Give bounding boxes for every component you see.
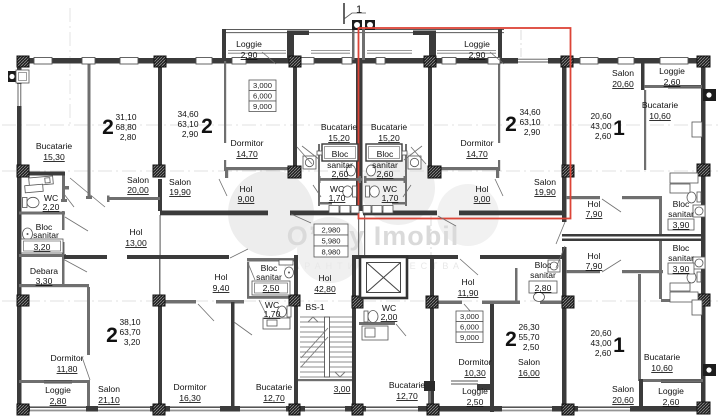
svg-text:10,60: 10,60 bbox=[649, 111, 671, 121]
svg-text:13,00: 13,00 bbox=[125, 238, 147, 248]
svg-text:10,30: 10,30 bbox=[464, 368, 486, 378]
svg-text:sanitar: sanitar bbox=[668, 253, 694, 263]
svg-text:Bloc: Bloc bbox=[332, 149, 349, 159]
svg-text:Loggie: Loggie bbox=[45, 385, 71, 395]
svg-text:8,980: 8,980 bbox=[321, 248, 340, 257]
svg-text:Loggie: Loggie bbox=[659, 66, 685, 76]
svg-text:2,90: 2,90 bbox=[241, 50, 258, 60]
svg-text:16,00: 16,00 bbox=[518, 368, 540, 378]
svg-text:2: 2 bbox=[106, 324, 118, 347]
svg-text:2: 2 bbox=[102, 116, 114, 139]
svg-text:2: 2 bbox=[201, 115, 213, 138]
svg-text:Salon: Salon bbox=[98, 384, 120, 394]
svg-text:9,40: 9,40 bbox=[213, 283, 230, 293]
svg-text:2,60: 2,60 bbox=[595, 348, 612, 358]
svg-text:7,90: 7,90 bbox=[586, 261, 603, 271]
svg-text:9,000: 9,000 bbox=[253, 102, 272, 111]
svg-text:3,30: 3,30 bbox=[36, 276, 53, 286]
svg-text:2,90: 2,90 bbox=[524, 127, 541, 137]
svg-text:26,30: 26,30 bbox=[519, 322, 540, 332]
svg-text:19,90: 19,90 bbox=[169, 187, 191, 197]
svg-text:15,20: 15,20 bbox=[328, 133, 350, 143]
svg-text:2: 2 bbox=[505, 328, 517, 351]
svg-text:sanitar: sanitar bbox=[668, 209, 694, 219]
svg-text:Bucatarie: Bucatarie bbox=[644, 352, 681, 362]
svg-text:6,000: 6,000 bbox=[253, 92, 272, 101]
svg-text:68,80: 68,80 bbox=[116, 122, 137, 132]
svg-text:3,00: 3,00 bbox=[334, 384, 351, 394]
svg-text:Hol: Hol bbox=[240, 184, 253, 194]
svg-text:Loggie: Loggie bbox=[462, 386, 488, 396]
svg-text:Salon: Salon bbox=[612, 68, 634, 78]
svg-text:19,90: 19,90 bbox=[534, 187, 556, 197]
svg-text:sanitar: sanitar bbox=[33, 230, 59, 240]
svg-text:1,70: 1,70 bbox=[382, 193, 399, 203]
svg-text:2,60: 2,60 bbox=[664, 77, 681, 87]
svg-text:Hol: Hol bbox=[476, 184, 489, 194]
svg-text:2,80: 2,80 bbox=[120, 132, 137, 142]
svg-text:20,00: 20,00 bbox=[127, 185, 149, 195]
svg-text:9,00: 9,00 bbox=[238, 194, 255, 204]
svg-text:31,10: 31,10 bbox=[116, 112, 137, 122]
svg-text:15,20: 15,20 bbox=[378, 133, 400, 143]
svg-text:2: 2 bbox=[505, 113, 517, 136]
svg-text:2,80: 2,80 bbox=[535, 283, 552, 293]
svg-text:43,00: 43,00 bbox=[591, 338, 612, 348]
svg-text:1,70: 1,70 bbox=[329, 193, 346, 203]
svg-text:Salon: Salon bbox=[612, 384, 634, 394]
svg-text:1,70: 1,70 bbox=[264, 309, 281, 319]
svg-text:20,60: 20,60 bbox=[612, 79, 634, 89]
svg-text:15,30: 15,30 bbox=[43, 152, 65, 162]
svg-text:sanitar: sanitar bbox=[530, 270, 556, 280]
svg-text:10,60: 10,60 bbox=[651, 363, 673, 373]
svg-text:38,10: 38,10 bbox=[120, 317, 141, 327]
svg-text:34,60: 34,60 bbox=[520, 107, 541, 117]
svg-text:2,90: 2,90 bbox=[469, 50, 486, 60]
svg-text:2,20: 2,20 bbox=[43, 202, 60, 212]
svg-text:Bucatarie: Bucatarie bbox=[642, 100, 679, 110]
svg-text:BS-1: BS-1 bbox=[305, 302, 324, 312]
svg-text:Bucatarie: Bucatarie bbox=[371, 122, 408, 132]
svg-text:sanitar: sanitar bbox=[256, 272, 282, 282]
svg-text:20,60: 20,60 bbox=[591, 111, 612, 121]
svg-text:9,000: 9,000 bbox=[460, 333, 479, 342]
svg-text:Hol: Hol bbox=[588, 251, 601, 261]
svg-text:Hol: Hol bbox=[215, 272, 228, 282]
svg-text:Bloc: Bloc bbox=[673, 243, 690, 253]
svg-text:Dormitor: Dormitor bbox=[51, 353, 84, 363]
svg-text:Bloc: Bloc bbox=[673, 199, 690, 209]
svg-text:2,60: 2,60 bbox=[377, 169, 394, 179]
svg-text:12,70: 12,70 bbox=[263, 393, 285, 403]
svg-text:7,90: 7,90 bbox=[586, 209, 603, 219]
svg-text:Hol: Hol bbox=[462, 277, 475, 287]
svg-text:2,50: 2,50 bbox=[467, 397, 484, 407]
svg-text:2,980: 2,980 bbox=[321, 226, 340, 235]
svg-text:Loggie: Loggie bbox=[464, 39, 490, 49]
svg-text:20,60: 20,60 bbox=[612, 395, 634, 405]
svg-text:3,20: 3,20 bbox=[124, 337, 141, 347]
svg-text:20,60: 20,60 bbox=[591, 328, 612, 338]
svg-text:3,90: 3,90 bbox=[673, 264, 690, 274]
svg-text:12,70: 12,70 bbox=[396, 391, 418, 401]
svg-text:14,70: 14,70 bbox=[466, 149, 488, 159]
svg-text:42,80: 42,80 bbox=[314, 284, 336, 294]
svg-text:55,70: 55,70 bbox=[519, 332, 540, 342]
svg-text:Hol: Hol bbox=[130, 227, 143, 237]
svg-text:34,60: 34,60 bbox=[178, 109, 199, 119]
svg-text:O’key Imobil: O’key Imobil bbox=[287, 221, 460, 251]
svg-text:3,90: 3,90 bbox=[673, 220, 690, 230]
svg-text:63,70: 63,70 bbox=[120, 327, 141, 337]
svg-text:Hol: Hol bbox=[588, 199, 601, 209]
svg-text:5,980: 5,980 bbox=[321, 237, 340, 246]
svg-text:Bloc: Bloc bbox=[377, 149, 394, 159]
svg-text:Dormitor: Dormitor bbox=[231, 138, 264, 148]
svg-text:Salon: Salon bbox=[518, 357, 540, 367]
svg-text:Bucatarie: Bucatarie bbox=[256, 382, 293, 392]
svg-text:2,90: 2,90 bbox=[182, 129, 199, 139]
svg-text:3,000: 3,000 bbox=[253, 81, 272, 90]
svg-text:Loggie: Loggie bbox=[236, 39, 262, 49]
svg-text:Dormitor: Dormitor bbox=[461, 138, 494, 148]
svg-text:3,20: 3,20 bbox=[34, 242, 51, 252]
svg-text:2,60: 2,60 bbox=[663, 397, 680, 407]
svg-text:Debara: Debara bbox=[30, 266, 58, 276]
svg-text:11,90: 11,90 bbox=[458, 288, 479, 298]
svg-text:2,50: 2,50 bbox=[263, 283, 280, 293]
svg-text:Dormitor: Dormitor bbox=[174, 382, 207, 392]
svg-text:1: 1 bbox=[356, 4, 362, 16]
svg-text:Bucatarie: Bucatarie bbox=[389, 380, 426, 390]
svg-text:Salon: Salon bbox=[169, 177, 191, 187]
svg-text:2,60: 2,60 bbox=[595, 131, 612, 141]
svg-text:9,00: 9,00 bbox=[474, 194, 491, 204]
svg-text:2,00: 2,00 bbox=[381, 312, 398, 322]
svg-text:63,10: 63,10 bbox=[520, 117, 541, 127]
svg-text:6,000: 6,000 bbox=[460, 323, 479, 332]
svg-text:Salon: Salon bbox=[534, 177, 556, 187]
svg-text:Loggie: Loggie bbox=[658, 386, 684, 396]
svg-text:Dormitor: Dormitor bbox=[459, 357, 492, 367]
svg-text:Bloc: Bloc bbox=[535, 260, 552, 270]
svg-text:2,80: 2,80 bbox=[50, 396, 67, 406]
svg-text:1: 1 bbox=[613, 117, 625, 140]
svg-text:14,70: 14,70 bbox=[236, 149, 258, 159]
svg-text:Hol: Hol bbox=[319, 273, 332, 283]
svg-text:3,000: 3,000 bbox=[460, 312, 479, 321]
svg-text:1: 1 bbox=[613, 334, 625, 357]
svg-text:16,30: 16,30 bbox=[179, 393, 201, 403]
svg-text:11,80: 11,80 bbox=[57, 364, 78, 374]
svg-text:Bucatarie: Bucatarie bbox=[36, 141, 73, 151]
svg-text:Salon: Salon bbox=[127, 175, 149, 185]
svg-text:63,10: 63,10 bbox=[178, 119, 199, 129]
svg-text:21,10: 21,10 bbox=[98, 395, 120, 405]
svg-text:43,00: 43,00 bbox=[591, 121, 612, 131]
svg-text:Bucatarie: Bucatarie bbox=[321, 122, 358, 132]
svg-text:2,60: 2,60 bbox=[332, 169, 349, 179]
svg-text:2,50: 2,50 bbox=[523, 342, 540, 352]
